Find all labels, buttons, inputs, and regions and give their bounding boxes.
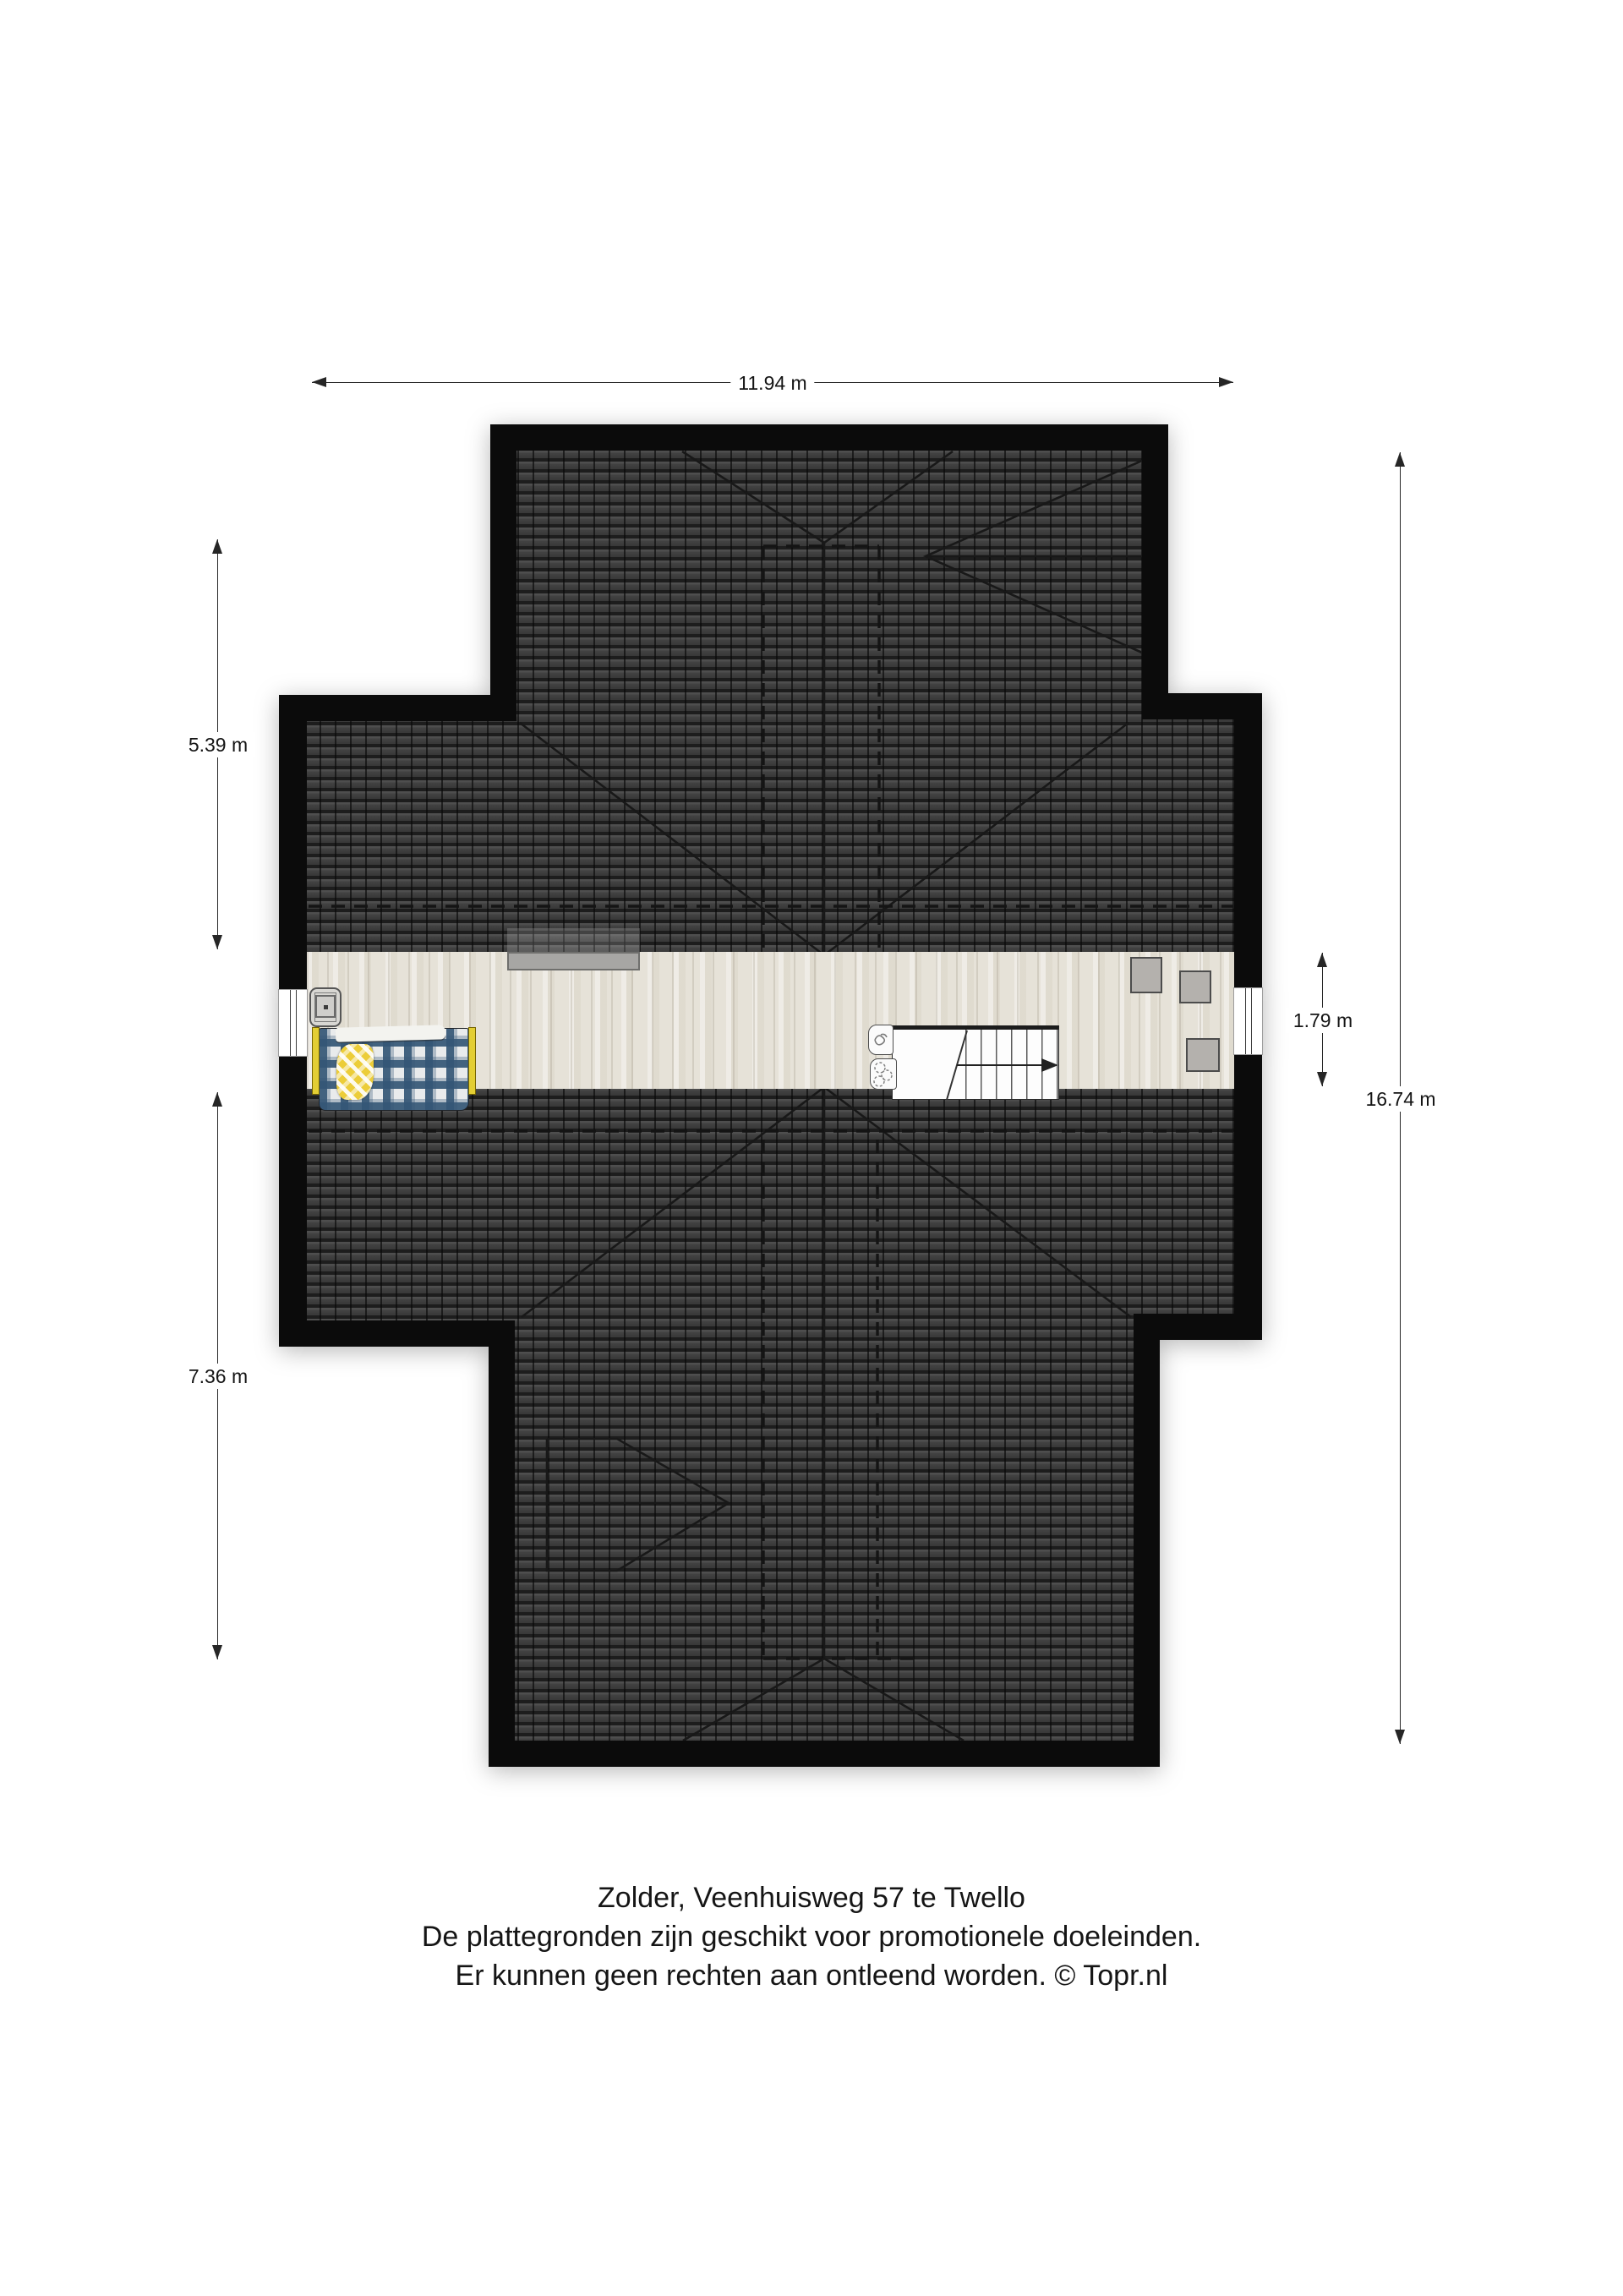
- bed: [312, 1025, 476, 1111]
- bed-footboard: [468, 1027, 476, 1095]
- window-icon: [1233, 987, 1263, 1055]
- dimension-label-top-width: 11.94 m: [730, 370, 814, 396]
- dimension-arrow-icon: [1317, 1072, 1327, 1086]
- nightstand: [309, 987, 342, 1027]
- sanitary-fixture-icon: [870, 1058, 897, 1090]
- caption-block: Zolder, Veenhuisweg 57 te Twello De plat…: [0, 1878, 1623, 1995]
- stairs-direction-arrow-icon: [1041, 1058, 1058, 1072]
- storage-box: [1130, 957, 1162, 993]
- dimension-arrow-icon: [212, 539, 222, 554]
- caption-title: Zolder, Veenhuisweg 57 te Twello: [0, 1878, 1623, 1917]
- dimension-arrow-icon: [1317, 953, 1327, 967]
- window-icon: [278, 989, 308, 1057]
- skylight-ghost-overlay: [507, 928, 640, 952]
- dimension-label-right-total: 16.74 m: [1358, 1086, 1443, 1112]
- dimension-arrow-icon: [212, 1645, 222, 1659]
- wall-shelf: [507, 952, 640, 970]
- bed-sheet-fold: [336, 1025, 445, 1041]
- storage-box: [1179, 970, 1211, 1003]
- dimension-arrow-icon: [1395, 452, 1405, 467]
- dimension-label-corridor: 1.79 m: [1286, 1008, 1360, 1033]
- staircase-markings: [893, 1025, 1060, 1100]
- staircase: [892, 1025, 1059, 1100]
- dimension-arrow-icon: [212, 935, 222, 949]
- dimension-arrow-icon: [312, 377, 326, 387]
- nightstand-knob: [324, 1005, 328, 1009]
- dimension-arrow-icon: [212, 1092, 222, 1107]
- bed-yellow-throw: [336, 1044, 374, 1100]
- dimension-arrow-icon: [1395, 1730, 1405, 1744]
- caption-disclaimer-1: De plattegronden zijn geschikt voor prom…: [0, 1917, 1623, 1956]
- caption-disclaimer-2: Er kunnen geen rechten aan ontleend word…: [0, 1956, 1623, 1995]
- window-glass-pane: [1245, 988, 1252, 1054]
- sanitary-fixture-icon: [868, 1025, 893, 1055]
- storage-box: [1186, 1038, 1220, 1072]
- dimension-arrow-icon: [1219, 377, 1233, 387]
- dimension-label-left-lower: 7.36 m: [181, 1364, 255, 1389]
- dimension-label-left-upper: 5.39 m: [181, 732, 255, 757]
- bed-headboard: [312, 1027, 320, 1095]
- window-glass-pane: [290, 990, 297, 1056]
